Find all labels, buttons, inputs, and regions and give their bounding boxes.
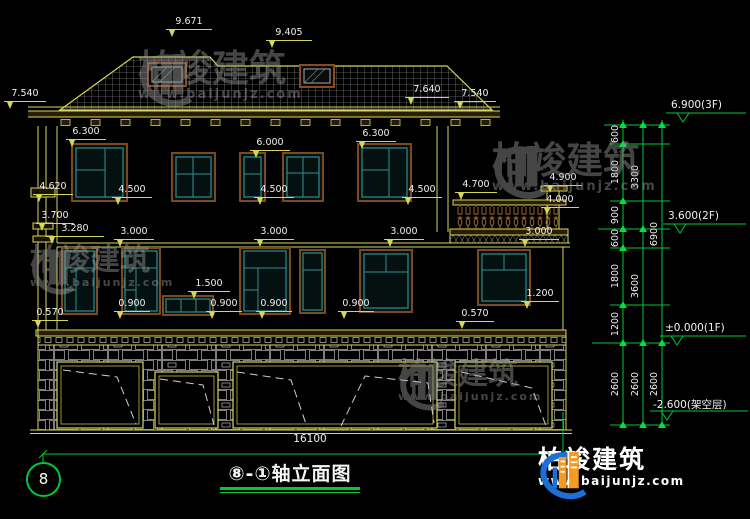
- dim-label: 0.570: [32, 307, 68, 321]
- watermark: 柏竣建筑 www.baijunjz.com: [30, 246, 174, 289]
- watermark: 柏竣建筑 www.baijunjz.com: [138, 50, 303, 102]
- dim-label: 7.540: [4, 88, 46, 102]
- dim-label: 4.500: [402, 184, 442, 198]
- window: [172, 153, 215, 201]
- chain-dim: 1200: [610, 304, 622, 344]
- dim-label: 4.620: [33, 181, 73, 195]
- watermark: 柏竣建筑 www.baijunjz.com: [492, 142, 657, 194]
- dim-label: 0.900: [206, 298, 242, 312]
- watermark-logo-icon: [398, 360, 448, 418]
- chain-dim: 6900: [649, 214, 661, 254]
- dim-label: 3.000: [384, 226, 424, 240]
- dim-label: 6.300: [356, 128, 396, 142]
- dim-label: 0.570: [456, 308, 494, 322]
- dim-label: 3.700: [36, 210, 74, 224]
- watermark-logo-icon: [30, 246, 78, 302]
- dim-label: 3.280: [46, 223, 104, 237]
- dim-label: 7.540: [454, 88, 496, 102]
- title-underline: [220, 492, 360, 493]
- dim-label: 1.200: [521, 288, 559, 302]
- axis-bubble: 8: [26, 462, 61, 497]
- chain-dim: 2600: [610, 364, 622, 404]
- dim-label: 0.900: [256, 298, 292, 312]
- dim-label: 9.671: [166, 16, 212, 30]
- dim-label: 6.300: [66, 126, 106, 140]
- cad-elevation-sheet: 9.671 9.405 7.540 7.640 7.540 6.300 6.00…: [0, 0, 750, 519]
- dim-label: 3.000: [519, 226, 559, 240]
- chain-dim: 1800: [610, 256, 622, 296]
- elevation-marker: 6.900(3F): [671, 99, 722, 111]
- dim-label: 0.900: [114, 298, 150, 312]
- dim-label: 9.405: [266, 27, 312, 41]
- dim-label: 4.700: [455, 179, 497, 193]
- roof-skylight: [300, 65, 334, 87]
- elevation-marker: 3.600(2F): [668, 210, 719, 222]
- dim-label: 3.000: [114, 226, 154, 240]
- drawing-title: ⑧-①轴立面图: [212, 459, 368, 486]
- dim-label: 6.000: [250, 137, 290, 151]
- title-underline: [220, 487, 360, 490]
- dim-label: 4.500: [112, 184, 152, 198]
- dim-label: 0.900: [338, 298, 374, 312]
- watermark-logo-icon: [138, 50, 196, 114]
- watermark: 柏竣建筑 www.baijunjz.com: [398, 360, 542, 403]
- brand-logo-icon: [538, 446, 590, 508]
- watermark-logo-icon: [492, 142, 550, 206]
- chain-dim: 600: [610, 218, 622, 258]
- dim-label: 3.000: [254, 226, 294, 240]
- chain-dim: 3600: [630, 266, 642, 306]
- dim-label: 7.640: [405, 84, 449, 98]
- chain-dim: 2600: [630, 364, 642, 404]
- dim-label: 1.500: [188, 278, 230, 292]
- dim-label: 4.500: [254, 184, 294, 198]
- window: [300, 250, 325, 313]
- elevation-marker: -2.600(架空层): [653, 397, 727, 412]
- elevation-marker: ±0.000(1F): [665, 322, 725, 334]
- total-width-dim: 16100: [272, 433, 348, 445]
- brand-logo: 柏竣建筑 www.baijunjz.com: [538, 446, 685, 488]
